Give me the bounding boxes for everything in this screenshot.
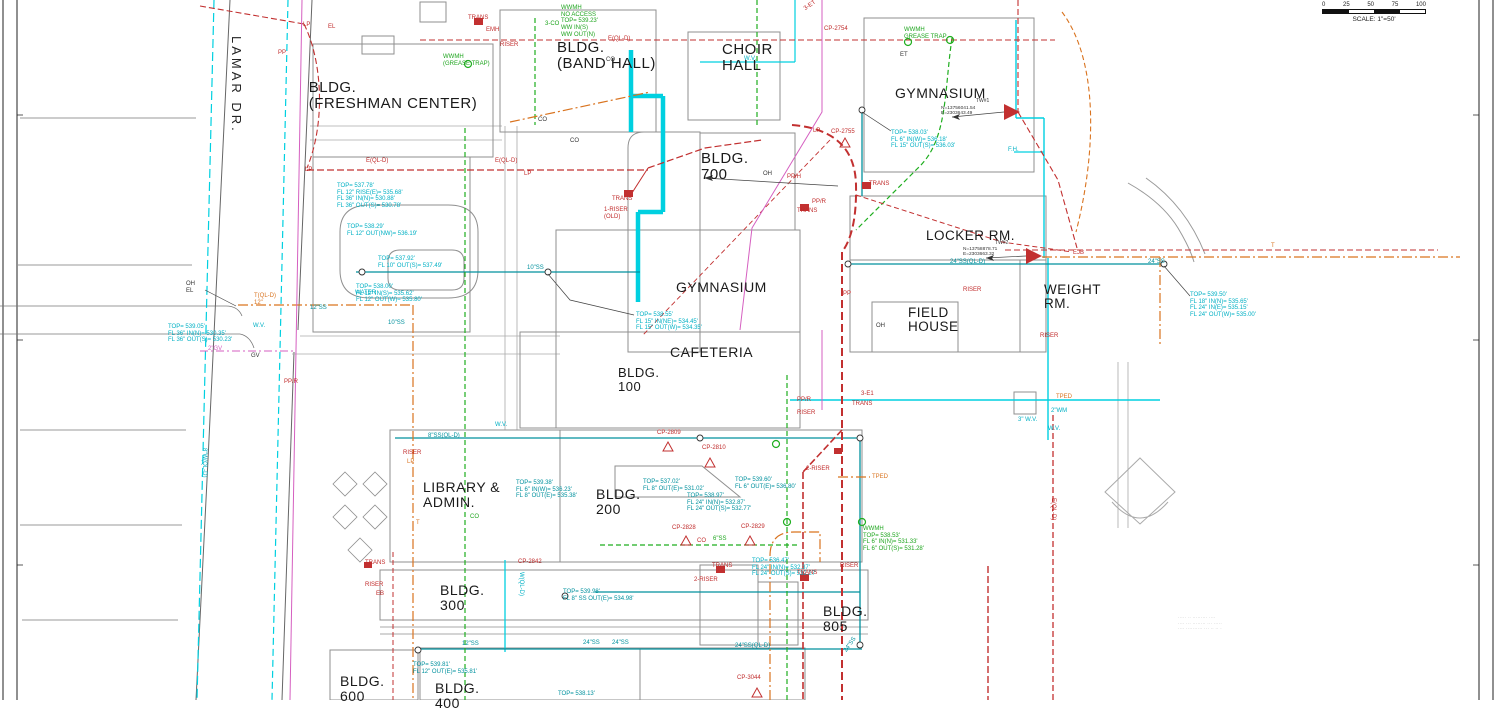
scale-tick: 50 bbox=[1367, 2, 1374, 8]
pipe-label: W(QL-D) bbox=[517, 572, 524, 596]
electric-label: TRANS bbox=[612, 196, 632, 203]
pipe-label: T bbox=[416, 520, 420, 527]
building-label-bldg-100: BLDG.100 bbox=[618, 366, 660, 393]
pipe-label: WATER bbox=[355, 290, 376, 297]
fine-print-note: ····· ·· ········· ···· ···· ··· ·······… bbox=[1178, 616, 1222, 633]
valve-label: W.V. bbox=[744, 56, 756, 63]
control-point-label: CP-2755 bbox=[831, 129, 855, 136]
pole-label: LP bbox=[524, 171, 531, 178]
electric-label: RISER bbox=[963, 287, 981, 294]
manhole-data: TOP= 537.92'FL 10" OUT(S)= 537.49' bbox=[378, 256, 442, 269]
cleanout-label: CO bbox=[570, 138, 579, 145]
control-point-label: CP-2809 bbox=[657, 430, 681, 437]
pipe-label: T(QL-D)12" bbox=[254, 293, 276, 306]
street-name-lamar-dr: LAMAR DR. bbox=[229, 36, 244, 134]
site-plan-sheet: { "scale_bar": { "ticks": ["0","25","50"… bbox=[0, 0, 1500, 700]
electric-label: RISER bbox=[797, 410, 815, 417]
manhole-data: TOP= 539.98'FL 8" SS OUT(E)= 534.98' bbox=[563, 589, 634, 602]
valve-label: 3" W.V. bbox=[1018, 417, 1037, 424]
control-point-label: CP-2754 bbox=[824, 26, 848, 33]
pipe-label: 24"SS bbox=[583, 640, 600, 647]
valve-label: W.V. bbox=[495, 422, 507, 429]
control-point-label: CP-2810 bbox=[702, 445, 726, 452]
pole-label: PP bbox=[278, 50, 286, 57]
electric-label: LP bbox=[407, 459, 414, 466]
scale-bar-label: SCALE: 1"=50' bbox=[1318, 16, 1430, 23]
manhole-data: TOP= 539.05'FL 36" IN(N)= 530.35'FL 36" … bbox=[168, 324, 232, 344]
pipe-label: 24"SS(QL-D) bbox=[735, 643, 770, 650]
building-label-bldg-600: BLDG.600 bbox=[340, 674, 385, 703]
telecom-label: TPED bbox=[1056, 394, 1072, 401]
control-point-label: CP-3044 bbox=[737, 675, 761, 682]
electric-label: RISER bbox=[840, 563, 858, 570]
electric-label: 3-E1 bbox=[861, 391, 874, 398]
pole-label: LP bbox=[303, 22, 310, 29]
pipe-label: T bbox=[1271, 243, 1275, 250]
building-label-cafeteria: CAFETERIA bbox=[670, 345, 753, 360]
control-point-symbols bbox=[663, 138, 850, 697]
pipe-label: 10"SS bbox=[527, 265, 544, 272]
electric-label: RISER bbox=[365, 582, 383, 589]
electric-label: 1-RISER(OLD) bbox=[604, 207, 628, 220]
manhole-data: TOP= 539.50'FL 18" IN(N)= 535.65'FL 24" … bbox=[1190, 292, 1256, 319]
electric-line-label: E(QL-D) bbox=[495, 158, 517, 165]
electric-label: EB bbox=[376, 591, 384, 598]
manhole-data: TOP= 538.03'FL 6" IN(W)= 536.18'FL 15" O… bbox=[891, 130, 955, 150]
manhole-data: TOP= 538.13' bbox=[558, 691, 595, 698]
electric-label: TRANS bbox=[852, 401, 872, 408]
pipe-label: 10"SS bbox=[388, 320, 405, 327]
valve-label: 2"WM bbox=[1051, 408, 1067, 415]
survey-point-label: TW#2 bbox=[995, 241, 1008, 247]
wwmh-label: WWMH(GREASE TRAP) bbox=[443, 54, 490, 67]
electric-label: TRANS bbox=[365, 560, 385, 567]
manhole-data: TOP= 538.55'FL 15" IN(NE)= 534.45'FL 15"… bbox=[636, 312, 702, 332]
building-label-bldg-300: BLDG.300 bbox=[440, 583, 485, 612]
wwmh-label: WWMHGREASE TRAP bbox=[904, 27, 947, 40]
pole-label: PP bbox=[843, 291, 851, 298]
survey-point-data: N=13756041.54E=2303643.49 bbox=[941, 106, 975, 117]
pole-label: PP/R bbox=[284, 379, 298, 386]
electric-label: TRANS bbox=[468, 15, 488, 22]
pipe-label: 24"SS(QL-D) bbox=[950, 259, 985, 266]
manhole-data: TOP= 537.78'FL 12" RISE(E)= 535.68'FL 36… bbox=[337, 183, 403, 210]
manhole-data: TOP= 538.97'FL 24" IN(N)= 532.87'FL 24" … bbox=[687, 493, 751, 513]
valve-label: 2"GV bbox=[208, 346, 222, 353]
pipe-label: 12"SS bbox=[462, 641, 479, 648]
pole-label: LP bbox=[305, 167, 312, 174]
building-label-gymnasium-central: GYMNASIUM bbox=[676, 280, 767, 295]
electric-label: RISER bbox=[403, 450, 421, 457]
manhole-data: TOP= 539.60'FL 6" OUT(E)= 536.80' bbox=[735, 477, 796, 490]
overhead-label: OHEL bbox=[186, 281, 195, 294]
electric-line-label: E(QL-D) bbox=[608, 36, 630, 43]
survey-point-data: N=13758878.71E=2303663.32 bbox=[963, 247, 997, 258]
pipe-label: 24"SS bbox=[612, 640, 629, 647]
cleanout-label: CO bbox=[470, 514, 479, 521]
scale-tick: 25 bbox=[1343, 2, 1350, 8]
building-label-weight-rm: WEIGHTRM. bbox=[1044, 283, 1101, 311]
scale-tick: 0 bbox=[1322, 2, 1325, 8]
drives-walks bbox=[292, 126, 1128, 528]
control-point-label: CP-2829 bbox=[741, 524, 765, 531]
building-label-bldg-200: BLDG.200 bbox=[596, 487, 641, 516]
electric-label: TRANS bbox=[712, 563, 732, 570]
cleanout-label: CO bbox=[606, 57, 615, 64]
control-point-label: CP-2842 bbox=[518, 559, 542, 566]
electric-line-label: EL bbox=[328, 24, 335, 31]
fine-print-line: ···· ·········· ··· ·· ·· · bbox=[1178, 627, 1222, 633]
parcel-lines bbox=[0, 118, 254, 620]
telecom-lines bbox=[238, 12, 1460, 700]
pipe-label: 12"SS bbox=[310, 305, 327, 312]
valve-label: GV bbox=[251, 353, 260, 360]
electric-line-label: E(QL-D) bbox=[1049, 498, 1056, 520]
scale-bar-graphic bbox=[1322, 9, 1426, 14]
electric-label: RISER bbox=[1040, 333, 1058, 340]
building-label-bldg-700: BLDG.700 bbox=[701, 151, 749, 183]
pipe-label: 8"SS(QL-D) bbox=[428, 433, 460, 440]
telecom-label: TPED bbox=[872, 474, 888, 481]
manhole-data: TOP= 538.29'FL 12" OUT(NW)= 536.19' bbox=[347, 224, 417, 237]
electric-label: PP/R bbox=[797, 397, 811, 404]
scale-tick: 75 bbox=[1392, 2, 1399, 8]
pole-label: PP/R bbox=[812, 199, 826, 206]
cleanout-label: CO bbox=[538, 117, 547, 124]
cleanout-label: CO bbox=[697, 538, 706, 545]
pole-label: PP/H bbox=[787, 174, 801, 181]
electric-label: 2-RISER bbox=[806, 466, 830, 473]
fine-print-line: ····· ·· ········· ···· bbox=[1178, 616, 1222, 622]
scale-bar: 0 25 50 75 100 SCALE: 1"=50' bbox=[1318, 2, 1438, 23]
electric-line-label: E(QL-D) bbox=[366, 158, 388, 165]
overhead-label: OH bbox=[763, 171, 772, 178]
hydrant-label: F.H. bbox=[1008, 147, 1019, 154]
building-label-library-admin: LIBRARY &ADMIN. bbox=[423, 480, 500, 509]
control-point-label: CP-2828 bbox=[672, 525, 696, 532]
electric-line-label: ET bbox=[900, 52, 908, 59]
electric-label: EMH bbox=[486, 27, 499, 34]
building-label-band-hall: BLDG.(BAND HALL) bbox=[557, 40, 656, 72]
electric-label: TRANS bbox=[797, 208, 817, 215]
cleanout-label: 3-CO bbox=[545, 21, 559, 28]
manhole-data: TOP= 537.02'FL 8" OUT(E)= 531.02' bbox=[643, 479, 704, 492]
wwmh-label: WWMHNO ACCESSTOP= 539.23'WW IN(S)WW OUT(… bbox=[561, 5, 598, 39]
manhole-data: TOP= 539.38'FL 6" IN(W)= 536.23'FL 8" OU… bbox=[516, 480, 577, 500]
scale-tick: 100 bbox=[1416, 2, 1426, 8]
pipe-label: 24"SS bbox=[1148, 259, 1165, 266]
electric-label: TRANS bbox=[797, 570, 817, 577]
pole-label: LP bbox=[813, 128, 820, 135]
electric-label: 2-RISER bbox=[694, 577, 718, 584]
survey-point-label: TW#1 bbox=[976, 99, 989, 105]
pipe-label: 8"W(QL-D) bbox=[200, 448, 207, 477]
scale-bar-ticks: 0 25 50 75 100 bbox=[1322, 2, 1426, 9]
pipe-label: 6"SS bbox=[713, 536, 726, 543]
electric-label: EJB bbox=[1073, 250, 1084, 257]
building-label-gymnasium-north: GYMNASIUM bbox=[895, 86, 986, 101]
overhead-label: OH bbox=[876, 323, 885, 330]
valve-label: W.V. bbox=[253, 323, 265, 330]
electric-label: TRANS bbox=[869, 181, 889, 188]
building-label-bldg-400: BLDG.400 bbox=[435, 681, 480, 710]
wwmh-label: WWMHTOP= 538.53'FL 6" IN(N)= 531.33'FL 6… bbox=[863, 526, 924, 553]
building-label-freshman-center: BLDG.(FRESHMAN CENTER) bbox=[309, 80, 478, 112]
electric-label: RISER bbox=[500, 42, 518, 49]
building-label-bldg-805: BLDG.805 bbox=[823, 604, 868, 633]
manhole-data: TOP= 539.81'FL 12" OUT(E)= 535.81' bbox=[413, 662, 477, 675]
valve-label: W.V. bbox=[1048, 426, 1060, 433]
building-label-field-house: FIELDHOUSE bbox=[908, 306, 959, 334]
